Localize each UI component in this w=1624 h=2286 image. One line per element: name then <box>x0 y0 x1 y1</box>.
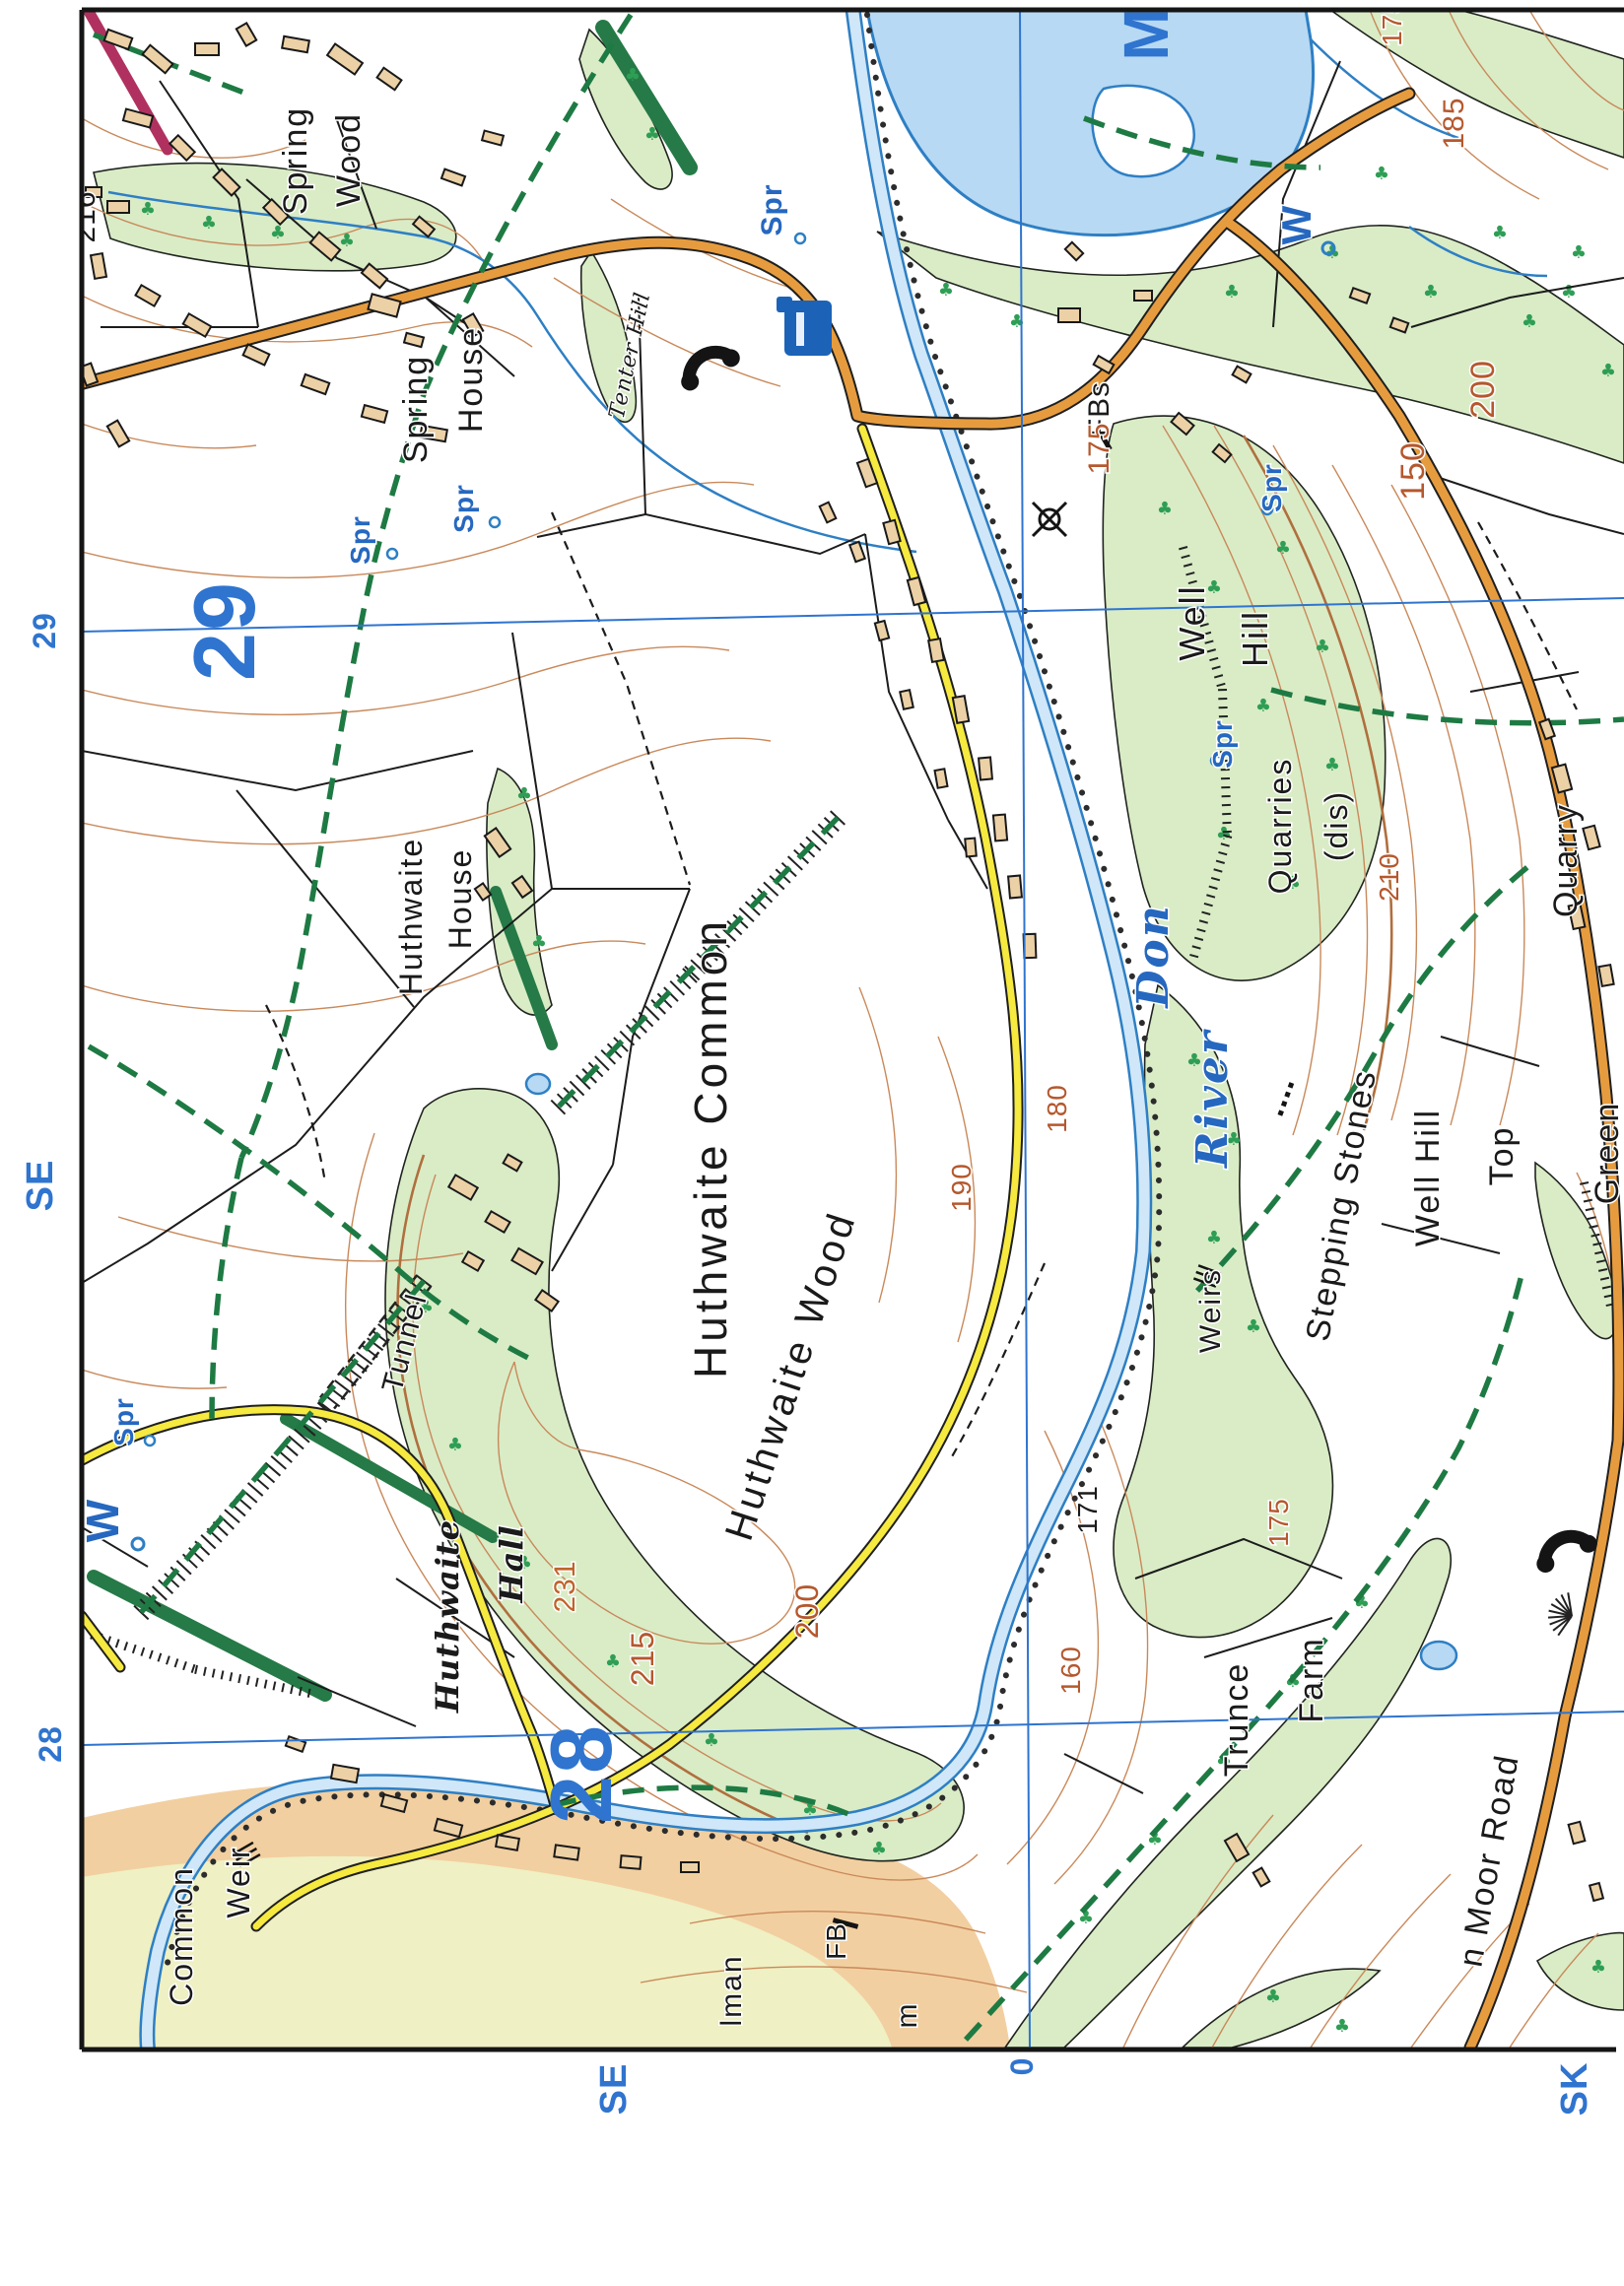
scanned-map-page: ♣♣♣♣♣♣♣♣♣♣♣♣♣♣♣♣♣♣♣♣♣♣♣♣♣♣♣♣♣♣♣♣♣♣♣♣♣♣♣♣… <box>0 0 1624 2286</box>
map-label-well: Well <box>1172 584 1212 660</box>
map-label-se: SE <box>20 1160 61 1212</box>
tree-icon: ♣ <box>270 223 286 243</box>
tree-icon: ♣ <box>1315 637 1330 657</box>
tree-icon: ♣ <box>1224 282 1240 303</box>
tree-icon: ♣ <box>1423 282 1439 303</box>
tree-icon: ♣ <box>1216 824 1232 844</box>
building <box>1598 965 1613 986</box>
map-label-190: 190 <box>946 1163 977 1212</box>
tree-icon: ♣ <box>1334 2016 1350 2037</box>
tree-icon: ♣ <box>1492 223 1508 243</box>
tree-icon: ♣ <box>1374 164 1389 184</box>
map-label-weirs: Weirs <box>1194 1268 1227 1353</box>
map-label-spring: Spring <box>397 355 435 463</box>
map-label-house: House <box>452 326 490 433</box>
tree-icon: ♣ <box>704 1730 719 1751</box>
building <box>107 201 129 213</box>
tree-icon: ♣ <box>625 65 641 86</box>
map-label-w: W <box>77 1499 128 1542</box>
tree-icon: ♣ <box>1590 1957 1606 1978</box>
tree-icon: ♣ <box>447 1435 463 1455</box>
tree-icon: ♣ <box>1324 755 1340 775</box>
museum-icon <box>777 297 832 356</box>
map-label-river: River <box>1187 1029 1238 1170</box>
map-label-farm: Farm <box>1293 1637 1330 1722</box>
tree-icon: ♣ <box>1157 499 1173 519</box>
tree-icon: ♣ <box>140 199 156 220</box>
map-label-spr: Spr <box>345 515 375 565</box>
tree-icon: ♣ <box>1522 311 1537 332</box>
map-label-m: M <box>1111 6 1182 60</box>
building <box>1134 291 1152 301</box>
building <box>1008 876 1022 899</box>
map-label-common: Common <box>164 1866 199 2006</box>
map-label-200: 200 <box>1464 360 1502 419</box>
map-label-spr: Spr <box>756 183 788 235</box>
tree-icon: ♣ <box>516 784 532 805</box>
map-label-29: 29 <box>27 612 62 649</box>
map-label-lman: lman <box>715 1954 748 2026</box>
map-label-wood: Wood <box>330 112 368 207</box>
map-label-spr: Spr <box>108 1397 139 1446</box>
building <box>928 639 944 662</box>
map-label-quarry: Quarry <box>1547 803 1585 917</box>
map-label-hill: Hill <box>1235 610 1275 667</box>
map-label-house: House <box>442 848 478 950</box>
tree-icon: ♣ <box>938 280 954 301</box>
map-label-huthwaite-common: Huthwaite Common <box>685 917 736 1378</box>
tree-icon: ♣ <box>1246 1316 1261 1337</box>
map-label-spr: Spr <box>448 484 479 533</box>
tree-icon: ♣ <box>1265 1986 1281 2007</box>
building <box>1058 308 1080 322</box>
map-label-don: Don <box>1128 904 1179 1010</box>
map-label-weir: Weir <box>221 1846 256 1917</box>
tree-icon: ♣ <box>531 932 547 953</box>
tree-icon: ♣ <box>1275 538 1291 559</box>
spring-icon <box>490 517 500 527</box>
map-label-m: m <box>891 2002 923 2029</box>
building <box>965 839 977 857</box>
map-label--dis-: (dis) <box>1319 790 1354 861</box>
building <box>621 1855 642 1869</box>
map-label-w: W <box>1273 205 1319 245</box>
map-content: ♣♣♣♣♣♣♣♣♣♣♣♣♣♣♣♣♣♣♣♣♣♣♣♣♣♣♣♣♣♣♣♣♣♣♣♣♣♣♣♣… <box>0 0 1624 2286</box>
map-label-0: 0 <box>1004 2057 1040 2076</box>
map-label-spr: Spr <box>1207 719 1238 769</box>
building <box>554 1845 578 1859</box>
building <box>979 758 992 780</box>
building <box>496 1835 519 1850</box>
map-label-spr: Spr <box>1256 463 1287 512</box>
map-label-216: 216 <box>69 190 101 242</box>
map-label-185: 185 <box>1438 97 1470 149</box>
tree-icon: ♣ <box>871 1839 887 1859</box>
map-label-215: 215 <box>625 1631 660 1686</box>
map-label-green: Green <box>1589 1102 1624 1205</box>
map-label-175: 175 <box>1083 422 1116 474</box>
map-label-160: 160 <box>1055 1646 1086 1695</box>
tree-icon: ♣ <box>1561 282 1577 303</box>
tree-icon: ♣ <box>1600 361 1616 381</box>
map-label-231: 231 <box>549 1560 581 1612</box>
tree-icon: ♣ <box>605 1651 621 1672</box>
tree-icon: ♣ <box>1571 242 1587 263</box>
os-explorer-map-scan: ♣♣♣♣♣♣♣♣♣♣♣♣♣♣♣♣♣♣♣♣♣♣♣♣♣♣♣♣♣♣♣♣♣♣♣♣♣♣♣♣… <box>0 0 1624 2286</box>
map-label-200: 200 <box>789 1583 825 1639</box>
map-label-180: 180 <box>1042 1084 1072 1133</box>
map-label-175: 175 <box>1377 0 1407 46</box>
building <box>993 815 1007 841</box>
tree-icon: ♣ <box>1206 1228 1222 1248</box>
spring-icon <box>145 1436 155 1446</box>
map-label-huthwaite: Huthwaite <box>429 1519 466 1714</box>
map-label-28: 28 <box>532 1723 630 1824</box>
map-label-trunce: Trunce <box>1218 1662 1255 1778</box>
map-label-well-hill: Well Hill <box>1409 1109 1447 1246</box>
map-label-hall: Hall <box>493 1524 530 1603</box>
map-label-150: 150 <box>1394 441 1432 501</box>
building <box>195 43 219 55</box>
tree-icon: ♣ <box>1255 696 1271 716</box>
map-label-se: SE <box>593 2063 635 2116</box>
map-label-huthwaite: Huthwaite <box>393 838 429 995</box>
map-label-spring: Spring <box>277 106 314 215</box>
spring-icon <box>387 549 397 559</box>
tree-icon: ♣ <box>201 213 217 234</box>
building <box>935 769 948 787</box>
map-label-210: 210 <box>1374 852 1404 902</box>
tree-icon: ♣ <box>644 124 660 145</box>
map-label-175: 175 <box>1263 1498 1294 1547</box>
map-label-28: 28 <box>33 1725 68 1763</box>
tree-icon: ♣ <box>1009 311 1025 332</box>
map-label-sk: SK <box>1554 2062 1595 2117</box>
spring-icon <box>795 234 805 243</box>
tree-icon: ♣ <box>339 231 355 251</box>
map-label-171: 171 <box>1072 1485 1103 1534</box>
map-label-quarries: Quarries <box>1262 758 1298 895</box>
building <box>681 1862 699 1872</box>
map-label-29: 29 <box>175 580 273 681</box>
map-label-fb: FB <box>821 1922 851 1960</box>
map-label-top: Top <box>1483 1126 1521 1186</box>
